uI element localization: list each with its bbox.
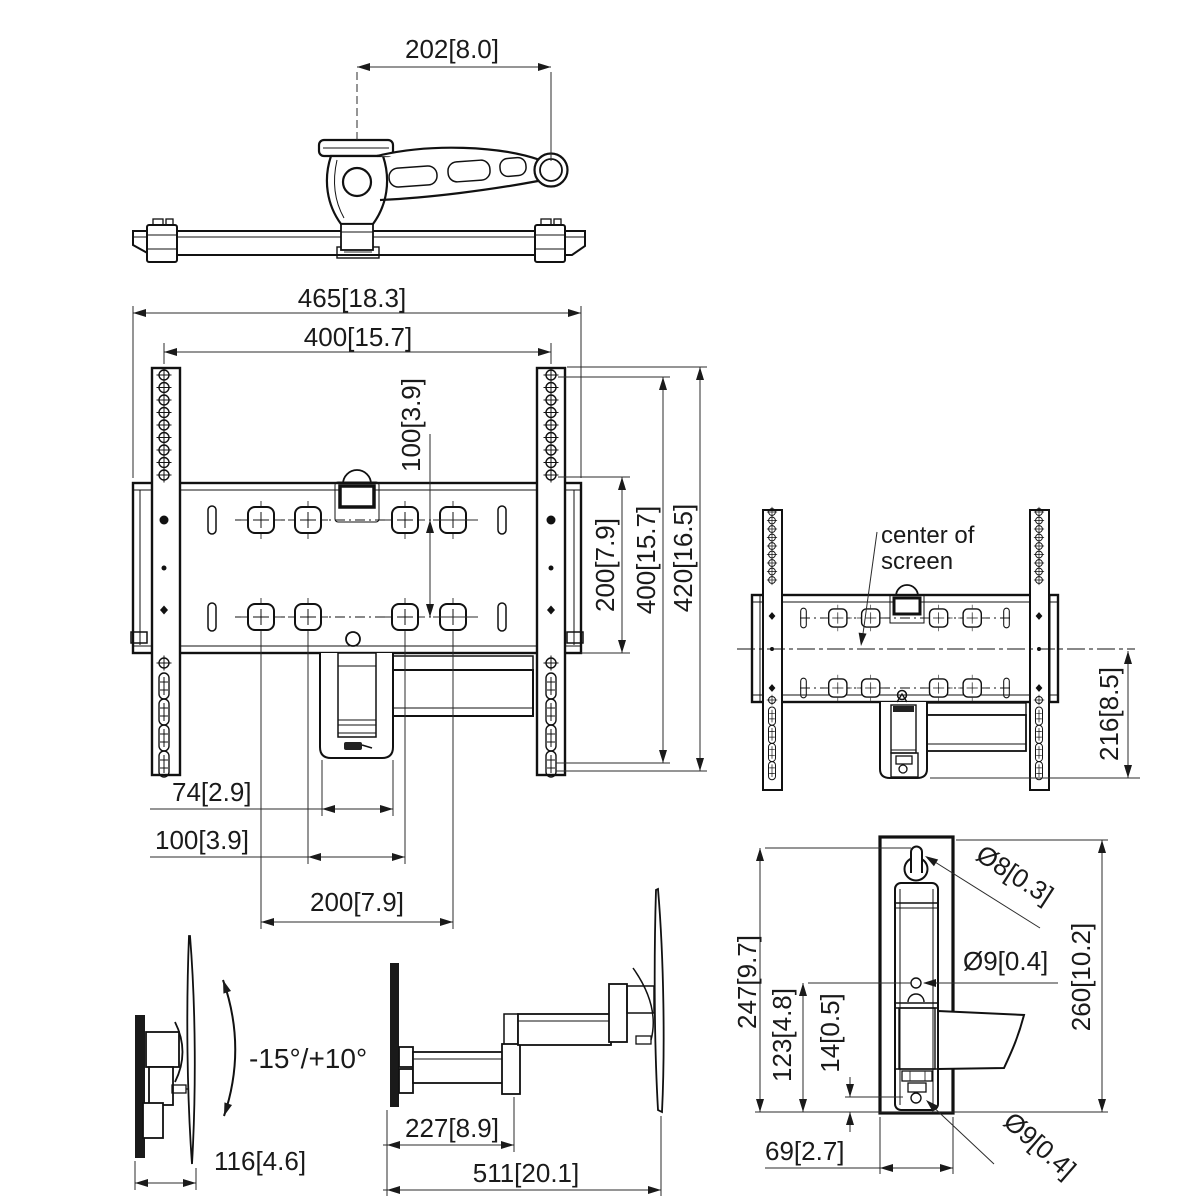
extended-wall-plate bbox=[390, 963, 399, 1107]
dim-front-vesa-width-label: 400[15.7] bbox=[304, 322, 412, 352]
dim-front-height-200-label: 200[7.9] bbox=[590, 518, 620, 612]
dim-front-pitch-100-label: 100[3.9] bbox=[396, 378, 426, 472]
dim-front-overall-height-label: 420[16.5] bbox=[668, 504, 698, 612]
dim-wall-height-260-label: 260[10.2] bbox=[1066, 923, 1096, 1031]
tilt-range-label: -15°/+10° bbox=[249, 1043, 367, 1074]
center-of-screen-label-line2: screen bbox=[881, 548, 953, 575]
front-left-rail bbox=[152, 368, 180, 778]
dim-arm-span-label: 202[8.0] bbox=[405, 34, 499, 64]
dim-side-center-to-bottom-label: 216[8.5] bbox=[1094, 667, 1124, 761]
dim-extended-max-reach-label: 511[20.1] bbox=[473, 1158, 580, 1188]
dim-wall-offset-14-label: 14[0.5] bbox=[815, 993, 845, 1073]
front-right-rail bbox=[537, 368, 565, 778]
dim-extended-first-arm-label: 227[8.9] bbox=[405, 1113, 499, 1143]
brand-logo bbox=[344, 742, 362, 750]
dim-front-offset-200-label: 200[7.9] bbox=[310, 887, 404, 917]
dim-front-overall-width-label: 465[18.3] bbox=[298, 283, 406, 313]
top-view-left-clamp bbox=[147, 219, 177, 262]
center-of-screen-label-line1: center of bbox=[881, 522, 975, 549]
dim-wall-height-247-label: 247[9.7] bbox=[732, 935, 762, 1029]
top-view-right-clamp bbox=[535, 219, 565, 262]
dim-tilt-depth-label: 116[4.6] bbox=[214, 1146, 306, 1176]
pivot-circle bbox=[343, 168, 371, 196]
dim-wall-height-123-label: 123[4.8] bbox=[767, 988, 797, 1082]
dim-front-offset-74-label: 74[2.9] bbox=[172, 777, 252, 807]
dim-wall-width-69-label: 69[2.7] bbox=[765, 1136, 845, 1166]
technical-drawing-page: 202[8.0] bbox=[0, 0, 1200, 1200]
dia-mid-hole-label: Ø9[0.4] bbox=[963, 946, 1048, 976]
dim-front-height-400-label: 400[15.7] bbox=[631, 506, 661, 614]
wall-plate-inner-rail bbox=[895, 883, 938, 1110]
dim-front-offset-100-label: 100[3.9] bbox=[155, 825, 249, 855]
technical-drawing-canvas: 202[8.0] bbox=[0, 0, 1200, 1200]
